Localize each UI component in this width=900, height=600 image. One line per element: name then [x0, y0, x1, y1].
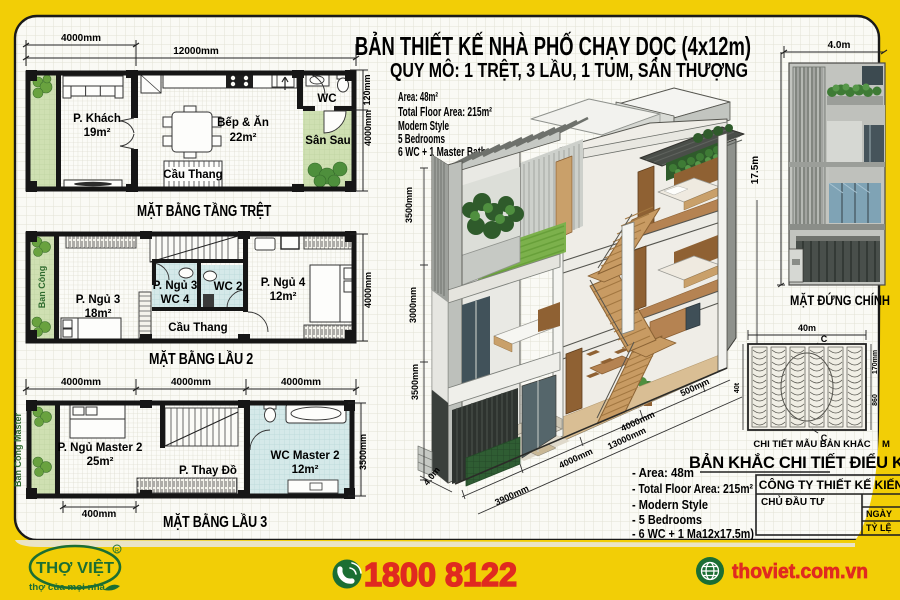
- svg-text:- Total Floor Area: 215m²: - Total Floor Area: 215m²: [632, 482, 753, 496]
- svg-text:4000mm: 4000mm: [171, 377, 211, 388]
- svg-text:25m²: 25m²: [87, 456, 114, 468]
- svg-text:R: R: [115, 548, 119, 554]
- svg-text:TỶ LỆ: TỶ LỆ: [866, 522, 892, 533]
- svg-text:Ban Công Master: Ban Công Master: [13, 413, 23, 488]
- svg-text:4000mm: 4000mm: [61, 33, 101, 44]
- svg-text:C: C: [821, 334, 828, 344]
- svg-text:BẢN KHẮC CHI TIẾT ĐIỂU KHẮC MÀ: BẢN KHẮC CHI TIẾT ĐIỂU KHẮC MÀ: [689, 453, 900, 472]
- svg-text:BẢN THIẾT KẾ NHÀ PHỐ CHẠY DỌC: BẢN THIẾT KẾ NHÀ PHỐ CHẠY DỌC (4x12m): [355, 31, 751, 61]
- svg-text:120mm: 120mm: [362, 74, 372, 105]
- svg-text:4000mm: 4000mm: [281, 377, 321, 388]
- svg-text:CHI TIẾT MẪU BẢN KHẮC: CHI TIẾT MẪU BẢN KHẮC: [753, 438, 870, 450]
- svg-text:P. Ngủ 3: P. Ngủ 3: [153, 280, 198, 292]
- svg-text:3500mm: 3500mm: [404, 187, 414, 223]
- svg-text:P. Ngủ 4: P. Ngủ 4: [261, 277, 306, 289]
- svg-text:WC: WC: [317, 93, 336, 105]
- svg-text:40m: 40m: [798, 323, 816, 333]
- svg-text:40t: 40t: [734, 382, 741, 393]
- svg-text:MẶT BẰNG LẦU 2: MẶT BẰNG LẦU 2: [149, 349, 253, 368]
- svg-text:M: M: [882, 439, 890, 450]
- svg-text:12m²: 12m²: [292, 464, 319, 476]
- svg-text:4000mm: 4000mm: [363, 110, 373, 146]
- svg-text:QUY MÔ: 1 TRỆT, 3 LẦU, 1 TUM,: QUY MÔ: 1 TRỆT, 3 LẦU, 1 TUM, SÂN THƯỢNG: [390, 58, 748, 82]
- svg-text:P. Ngủ 3: P. Ngủ 3: [76, 294, 121, 306]
- svg-text:1800 8122: 1800 8122: [364, 556, 517, 593]
- svg-text:P. Ngủ Master 2: P. Ngủ Master 2: [58, 442, 143, 454]
- svg-text:WC Master 2: WC Master 2: [270, 450, 339, 462]
- svg-text:Total Floor Area: 215m²: Total Floor Area: 215m²: [398, 105, 492, 119]
- svg-text:3500mm: 3500mm: [358, 434, 368, 470]
- svg-text:MẶT ĐỨNG CHÍNH: MẶT ĐỨNG CHÍNH: [790, 293, 890, 308]
- svg-text:NGÀY: NGÀY: [866, 509, 892, 519]
- svg-text:WC 4: WC 4: [161, 294, 190, 306]
- svg-text:4.0m: 4.0m: [828, 40, 851, 51]
- svg-text:Ban Công: Ban Công: [37, 266, 47, 309]
- svg-text:thợ của mọi nhà: thợ của mọi nhà: [29, 582, 106, 592]
- svg-text:5 Bedrooms: 5 Bedrooms: [398, 132, 445, 146]
- svg-text:400mm: 400mm: [82, 509, 117, 520]
- svg-text:Bếp & Ăn: Bếp & Ăn: [217, 116, 269, 129]
- svg-text:- 6 WC + 1 Ma12x17.5m): - 6 WC + 1 Ma12x17.5m): [632, 527, 754, 541]
- svg-text:12m²: 12m²: [270, 291, 297, 303]
- svg-text:Area: 48m²: Area: 48m²: [398, 90, 438, 104]
- svg-text:CHỦ ĐẦU TƯ: CHỦ ĐẦU TƯ: [761, 495, 825, 508]
- svg-text:22m²: 22m²: [230, 132, 257, 144]
- svg-text:4000mm: 4000mm: [363, 272, 373, 308]
- svg-text:Cầu Thang: Cầu Thang: [163, 169, 222, 181]
- svg-text:170mm: 170mm: [872, 350, 879, 374]
- svg-text:4000mm: 4000mm: [61, 377, 101, 388]
- svg-text:MẶT BẰNG TẦNG TRỆT: MẶT BẰNG TẦNG TRỆT: [137, 201, 271, 220]
- svg-text:17.5m: 17.5m: [750, 156, 761, 184]
- svg-text:thoviet.com.vn: thoviet.com.vn: [732, 561, 868, 583]
- svg-text:3000mm: 3000mm: [408, 287, 418, 323]
- svg-text:P. Thay Đồ: P. Thay Đồ: [179, 465, 237, 477]
- svg-text:- Modern Style: - Modern Style: [632, 498, 708, 512]
- svg-text:MẶT BẰNG LẦU 3: MẶT BẰNG LẦU 3: [163, 512, 267, 531]
- svg-text:18m²: 18m²: [85, 308, 112, 320]
- svg-text:THỢ VIỆT: THỢ VIỆT: [36, 558, 114, 577]
- svg-text:CÔNG TY THIẾT KẾ KIẾN: CÔNG TY THIẾT KẾ KIẾN: [759, 477, 900, 492]
- svg-text:19m²: 19m²: [84, 127, 111, 139]
- svg-text:Cầu Thang: Cầu Thang: [168, 322, 227, 334]
- svg-text:- 5 Bedrooms: - 5 Bedrooms: [632, 513, 702, 527]
- svg-text:860: 860: [872, 394, 879, 406]
- svg-text:P. Khách: P. Khách: [73, 113, 121, 125]
- svg-text:Modern Style: Modern Style: [398, 119, 449, 133]
- svg-text:12000mm: 12000mm: [173, 46, 219, 57]
- svg-text:Sân Sau: Sân Sau: [305, 135, 350, 147]
- svg-text:- Area: 48m: - Area: 48m: [632, 466, 694, 480]
- svg-text:3500mm: 3500mm: [410, 364, 420, 400]
